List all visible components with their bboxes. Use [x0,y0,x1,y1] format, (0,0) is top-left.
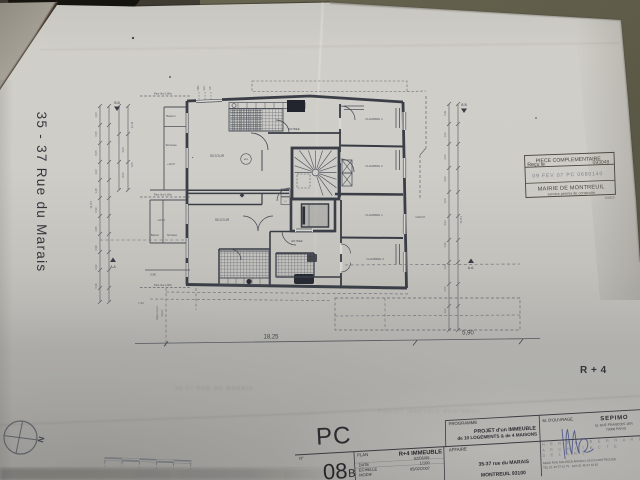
svg-text:1,00: 1,00 [94,169,98,175]
svg-text:0,55: 0,55 [94,131,98,137]
svg-text:Balcon: Balcon [166,114,176,118]
svg-text:AFFAIRE: AFFAIRE [449,446,467,452]
svg-text:0,81: 0,81 [443,110,447,116]
svg-text:A.A: A.A [110,265,116,269]
svg-text:18,25: 18,25 [263,335,279,341]
svg-text:3,98: 3,98 [94,245,98,251]
svg-text:1,28: 1,28 [94,188,98,194]
svg-text:Pare Vue 1,80m: Pare Vue 1,80m [154,284,172,287]
svg-text:08: 08 [322,458,348,480]
svg-text:0,98: 0,98 [150,273,156,277]
svg-text:093048: 093048 [593,159,610,166]
svg-text:1,00: 1,00 [130,162,134,168]
svg-text:2,00: 2,00 [443,154,447,160]
svg-text:+10,37: +10,37 [167,163,175,166]
svg-text:A.A.: A.A. [468,266,474,270]
svg-text:PROJET IMMEUBLE MONTREUIL: PROJET IMMEUBLE MONTREUIL [379,409,482,415]
svg-text:Pare Vue 1,80m: Pare Vue 1,80m [154,93,172,96]
svg-text:B.B: B.B [114,101,120,105]
svg-text:CHAMBRE 3: CHAMBRE 3 [366,257,384,261]
svg-text:Terrasse: Terrasse [165,143,177,147]
svg-text:103923: 103923 [604,195,614,199]
svg-text:REF: REF [244,159,249,161]
svg-text:CHAMBRE 1: CHAMBRE 1 [365,117,383,121]
svg-text:0,90: 0,90 [94,207,98,213]
svg-text:SEJOUR: SEJOUR [210,154,225,158]
svg-text:B B: B B [461,103,467,107]
svg-text:Balcon: Balcon [151,233,160,237]
svg-text:11,84: 11,84 [459,216,463,224]
svg-text:4,00: 4,00 [121,147,125,153]
svg-text:CHAMBRE 2: CHAMBRE 2 [365,164,383,168]
svg-text:MODIF: MODIF [359,472,373,478]
svg-text:2,00: 2,00 [443,286,447,292]
svg-text:ENTREE: ENTREE [288,127,299,131]
svg-text:12,16: 12,16 [130,121,134,128]
svg-text:PLAN: PLAN [357,452,368,458]
svg-text:N°: N° [299,456,304,461]
svg-text:Alignement: Alignement [155,306,159,320]
svg-text:PC: PC [315,422,352,451]
svg-text:6,55: 6,55 [94,150,98,156]
svg-text:VMC: VMC [198,85,200,90]
svg-text:0,82: 0,82 [94,264,98,270]
svg-text:SEJOUR: SEJOUR [215,218,230,222]
svg-text:1,90: 1,90 [443,242,447,248]
svg-text:35-37 RUE DU MARAIS: 35-37 RUE DU MARAIS [175,386,253,392]
svg-text:1,00: 1,00 [94,112,98,118]
svg-text:B: B [348,468,356,480]
svg-text:1,00: 1,00 [443,198,447,204]
svg-text:5,90: 5,90 [462,331,474,337]
svg-text:1,92: 1,92 [138,301,144,305]
svg-text:2,00: 2,00 [443,220,447,226]
svg-text:11,84: 11,84 [89,201,93,209]
svg-text:1,03: 1,03 [443,308,447,314]
svg-text:35 - 37 Rue du Marais: 35 - 37 Rue du Marais [34,112,49,273]
svg-text:1,00: 1,00 [443,132,447,138]
svg-text:1,00: 1,00 [443,264,447,270]
svg-text:CHAMBRE 1: CHAMBRE 1 [365,213,383,217]
svg-text:2,65: 2,65 [94,226,98,232]
svg-text:+10,51: +10,51 [157,219,165,222]
svg-text:Reçu le: Reçu le [527,162,545,169]
svg-text:3,00: 3,00 [443,176,447,182]
svg-text:8,00: 8,00 [121,172,125,178]
svg-text:desc: desc [204,85,206,91]
svg-text:ENTREE: ENTREE [291,239,302,243]
svg-text:Voisin: Voisin [160,309,164,317]
svg-text:5,36: 5,36 [94,283,98,289]
svg-text:Pare Vue 1,80m: Pare Vue 1,80m [154,194,172,197]
svg-text:R + 4: R + 4 [580,365,607,376]
svg-text:Terrasse: Terrasse [167,233,178,237]
svg-text:EP: EP [210,86,212,90]
